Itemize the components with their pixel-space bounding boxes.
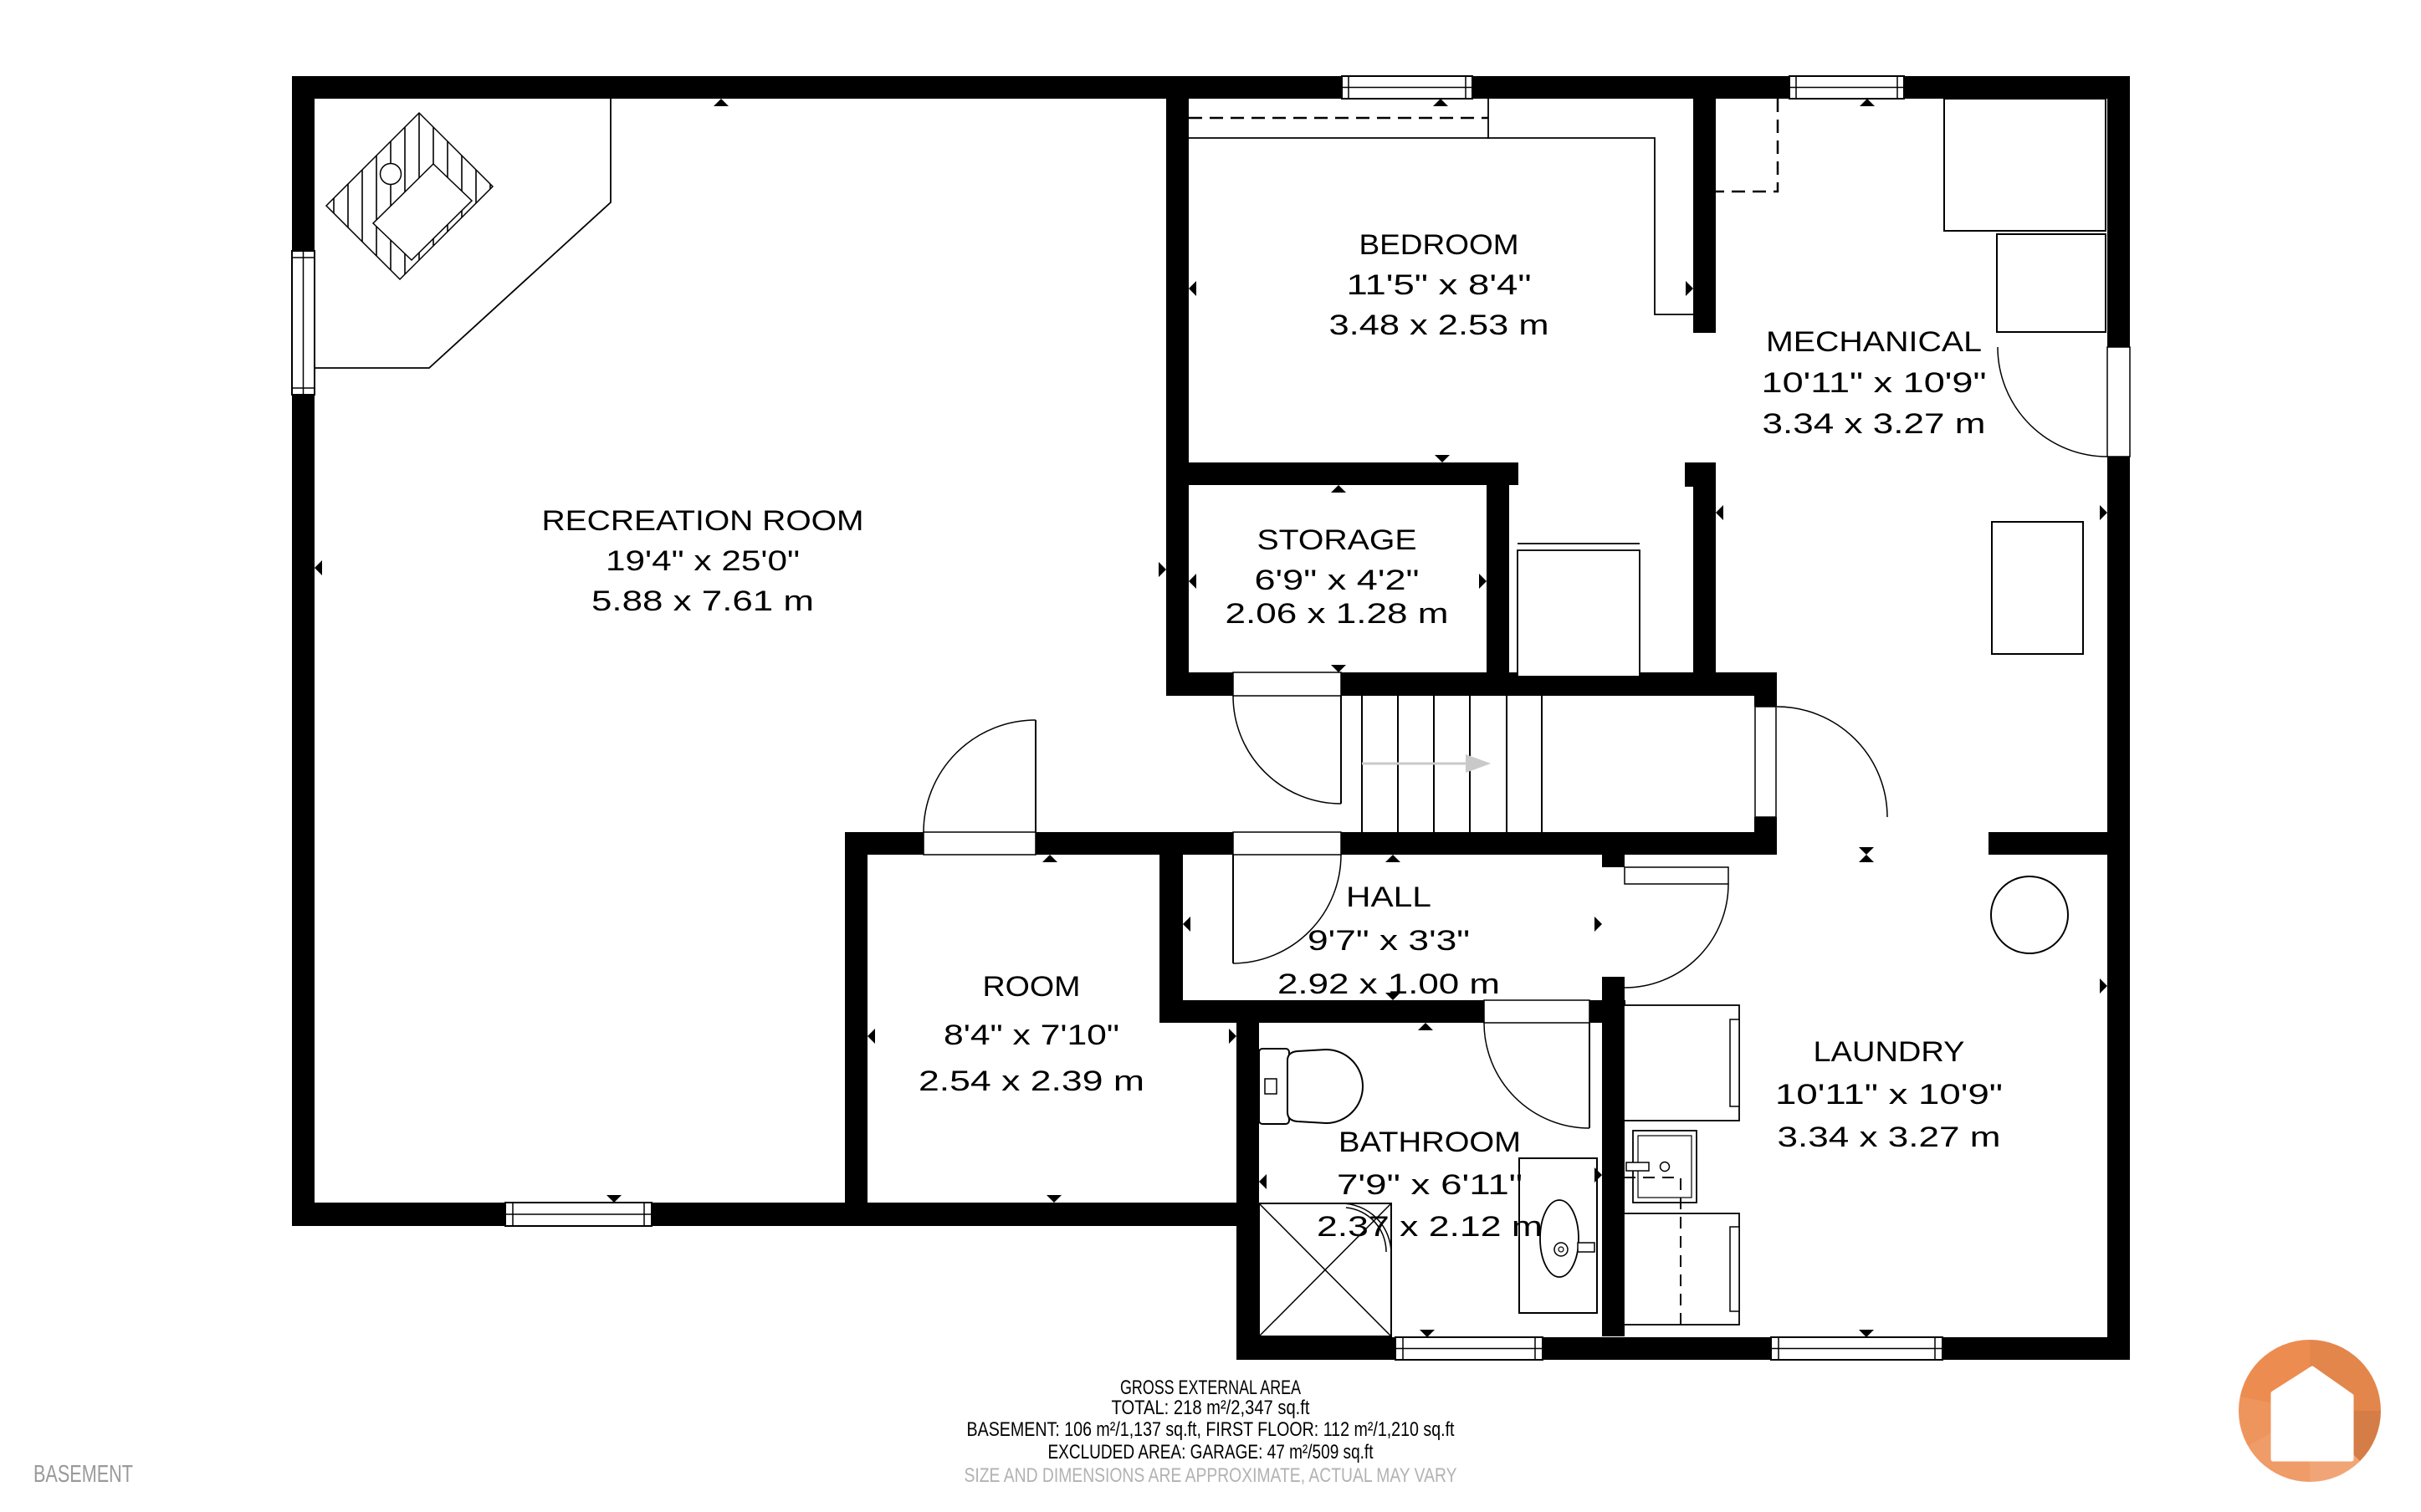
svg-text:3.34 x 3.27 m: 3.34 x 3.27 m [1763,408,1986,440]
svg-text:2.92 x 1.00 m: 2.92 x 1.00 m [1277,968,1500,1000]
svg-text:2.06 x 1.28 m: 2.06 x 1.28 m [1226,598,1449,630]
svg-text:TOTAL: 218 m²/2,347 sq.ft: TOTAL: 218 m²/2,347 sq.ft [1112,1397,1310,1419]
svg-text:STORAGE: STORAGE [1257,524,1417,556]
svg-text:RECREATION ROOM: RECREATION ROOM [542,505,864,537]
svg-text:LAUNDRY: LAUNDRY [1814,1036,1965,1068]
svg-text:2.37 x 2.12 m: 2.37 x 2.12 m [1317,1211,1543,1243]
svg-text:EXCLUDED AREA: GARAGE: 47 m²/5: EXCLUDED AREA: GARAGE: 47 m²/509 sq.ft [1048,1441,1374,1463]
svg-text:2.54 x 2.39 m: 2.54 x 2.39 m [919,1065,1144,1097]
svg-text:8'4" x 7'10": 8'4" x 7'10" [944,1019,1119,1051]
svg-text:HALL: HALL [1346,881,1431,913]
svg-text:GROSS EXTERNAL AREA: GROSS EXTERNAL AREA [1120,1377,1301,1399]
svg-text:SIZE AND DIMENSIONS ARE APPROX: SIZE AND DIMENSIONS ARE APPROXIMATE, ACT… [965,1464,1457,1487]
svg-text:6'9" x 4'2": 6'9" x 4'2" [1255,564,1420,596]
svg-text:BATHROOM: BATHROOM [1338,1126,1521,1158]
svg-text:10'11" x 10'9": 10'11" x 10'9" [1775,1079,2003,1111]
svg-text:5.88 x 7.61 m: 5.88 x 7.61 m [591,585,814,617]
svg-text:ROOM: ROOM [983,971,1081,1003]
svg-text:3.48 x 2.53 m: 3.48 x 2.53 m [1329,309,1549,341]
svg-text:7'9" x 6'11": 7'9" x 6'11" [1337,1169,1523,1201]
svg-text:MECHANICAL: MECHANICAL [1766,326,1982,358]
svg-text:19'4" x 25'0": 19'4" x 25'0" [606,545,800,577]
svg-text:BASEMENT: BASEMENT [33,1461,133,1488]
svg-text:BASEMENT: 106 m²/1,137 sq.ft,: BASEMENT: 106 m²/1,137 sq.ft, FIRST FLOO… [967,1418,1455,1441]
svg-text:BEDROOM: BEDROOM [1359,229,1519,261]
svg-text:10'11" x 10'9": 10'11" x 10'9" [1762,367,1987,399]
svg-text:3.34 x 3.27 m: 3.34 x 3.27 m [1778,1121,2001,1153]
svg-text:11'5" x 8'4": 11'5" x 8'4" [1347,269,1532,301]
svg-text:9'7" x 3'3": 9'7" x 3'3" [1308,925,1470,957]
